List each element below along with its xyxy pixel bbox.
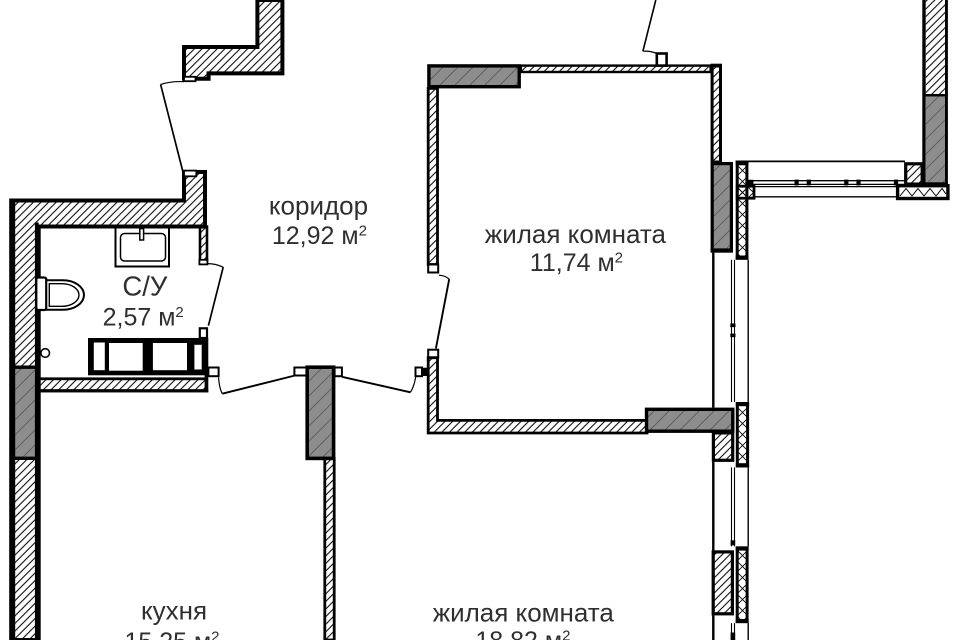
svg-text:11,74 м2: 11,74 м2 [530, 249, 623, 277]
svg-text:жилая комната: жилая комната [433, 598, 615, 628]
svg-text:жилая комната: жилая комната [485, 219, 667, 249]
svg-text:2,57 м2: 2,57 м2 [103, 303, 184, 331]
svg-text:18,82 м2: 18,82 м2 [475, 627, 570, 640]
svg-text:12,92 м2: 12,92 м2 [272, 222, 367, 250]
svg-text:кухня: кухня [141, 596, 207, 626]
svg-text:коридор: коридор [269, 191, 368, 221]
svg-text:15,25 м2: 15,25 м2 [124, 628, 219, 640]
svg-text:С/У: С/У [122, 271, 168, 302]
